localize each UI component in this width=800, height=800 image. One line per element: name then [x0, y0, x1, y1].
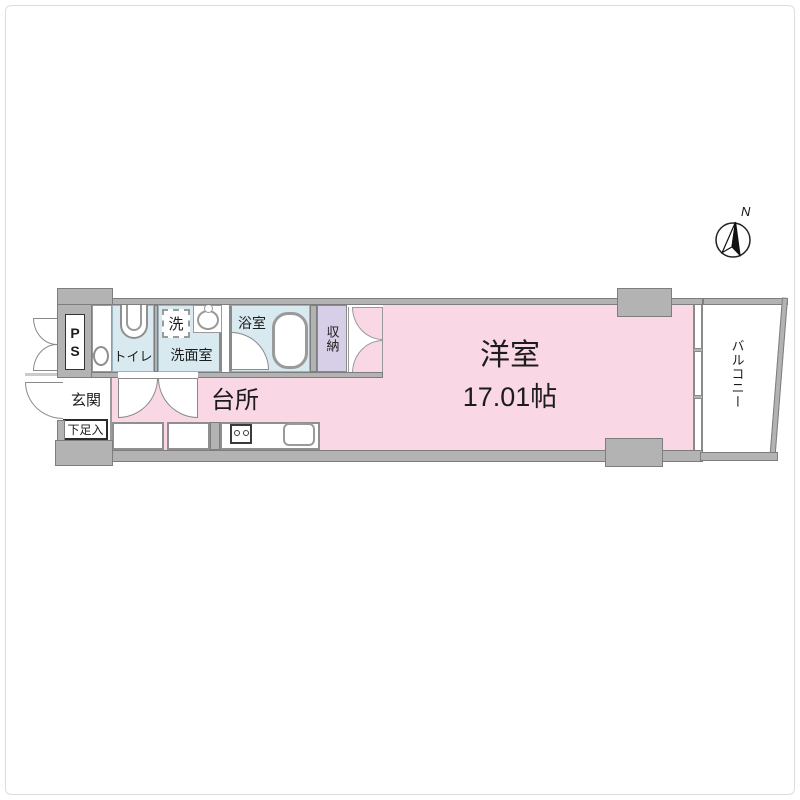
toilet-bowl-inner: [126, 304, 142, 331]
top-left-corner-block: [57, 288, 113, 305]
counter-segment-1: [112, 422, 164, 450]
upper-partition-wall: [57, 372, 383, 378]
kitchen-sink-icon: [283, 423, 315, 446]
bathroom-storage-wall: [310, 305, 317, 372]
bathroom-label: 浴室: [234, 314, 270, 332]
top-wall: [57, 298, 703, 305]
vanity-sink-bowl-icon: [197, 310, 219, 330]
hand-basin-icon: [93, 346, 109, 366]
western-room-label: 洋室: [410, 334, 610, 370]
entrance-label: 玄関: [65, 389, 107, 409]
stove-burner-left: [234, 430, 240, 436]
vanity-faucet-icon: [204, 304, 213, 313]
washroom-label: 洗面室: [164, 346, 219, 364]
counter-segment-2: [167, 422, 210, 450]
bottom-pillar: [605, 438, 663, 467]
balcony-bottom-wall: [700, 452, 778, 461]
top-pillar: [617, 288, 672, 317]
floor-plan-canvas: PS トイレ 洗 洗面室 浴室 収納 玄関 下足入 台所 洋室 17.01帖 バ…: [0, 0, 800, 800]
shoe-cabinet-label: 下足入: [63, 421, 108, 438]
ps-label: PS: [65, 318, 85, 368]
stove-burner-right: [243, 430, 249, 436]
balcony-top-wall: [703, 298, 788, 305]
compass-north-label: N: [741, 204, 751, 219]
bathtub-icon: [272, 312, 308, 369]
washer-label: 洗: [162, 310, 190, 337]
compass-icon: N: [703, 198, 767, 268]
window-mullion-2: [693, 395, 703, 399]
kitchen-label: 台所: [200, 383, 270, 411]
window-mullion-1: [693, 348, 703, 352]
neighbor-wall-stub: [25, 373, 57, 376]
toilet-label: トイレ: [110, 346, 156, 364]
western-room-size: 17.01帖: [410, 378, 610, 410]
counter-wall-stub: [210, 422, 220, 450]
balcony-label: バルコニー: [724, 336, 750, 412]
storage-label: 収納: [317, 314, 347, 364]
bottom-left-corner-block: [55, 440, 113, 466]
balcony-window: [693, 305, 703, 450]
